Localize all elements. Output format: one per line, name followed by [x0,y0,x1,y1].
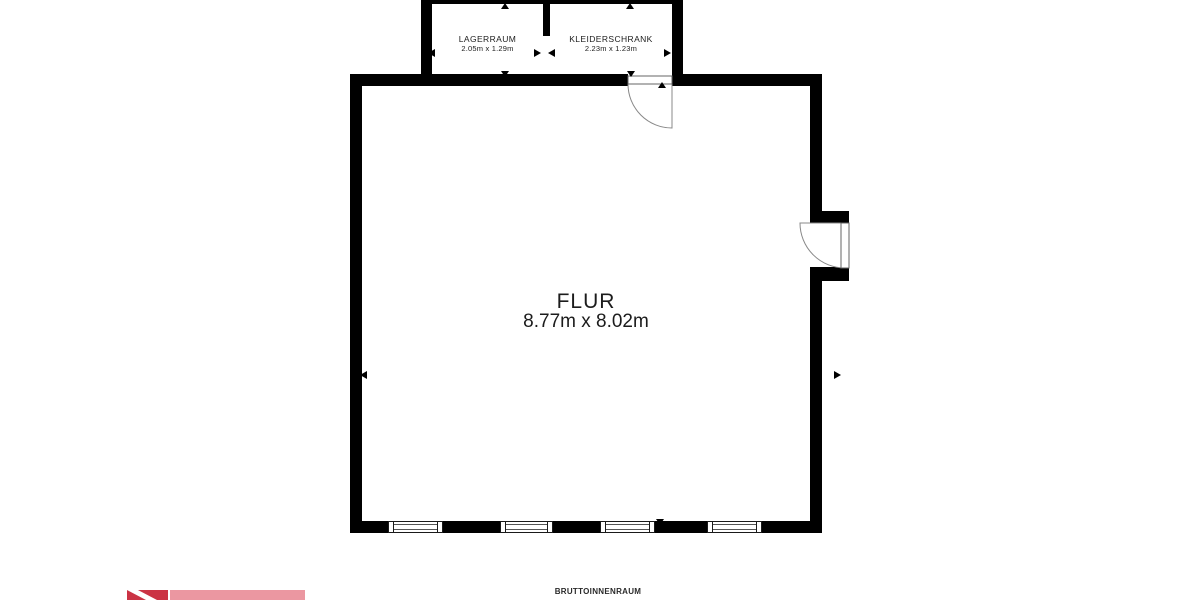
dim-arrow-down-icon [501,71,509,77]
room-dims-flur: 8.77m x 8.02m [436,312,736,331]
window [388,521,443,533]
door-opening-right [810,223,849,267]
dim-arrow-up-icon [501,3,509,9]
wall-closet-left [421,0,432,74]
wall-closet-divider [543,0,550,36]
room-name-lagerraum: LAGERRAUM [432,34,543,44]
footer-area-label: BRUTTOINNENRAUM [538,587,658,596]
dim-arrow-right-icon [834,371,841,379]
dim-arrow-down-icon [656,519,664,525]
room-name-flur: FLUR [436,291,736,312]
dim-arrow-down-icon [627,71,635,77]
dim-arrow-left-icon [360,371,367,379]
floorplan-canvas: LAGERRAUM 2.05m x 1.29m KLEIDERSCHRANK 2… [0,0,1200,600]
window-cap [437,522,438,532]
window-panes [506,524,547,530]
wall-main-top [350,74,822,86]
brand-logo-icon [127,589,307,600]
room-name-kleiderschrank: KLEIDERSCHRANK [550,34,672,44]
window [600,521,655,533]
window [707,521,762,533]
window [500,521,553,533]
wall-main-left [350,74,362,533]
window-cap [756,522,757,532]
wall-main-right [810,74,822,533]
window-panes [606,524,649,530]
room-dims-lagerraum: 2.05m x 1.29m [432,44,543,53]
window-cap [649,522,650,532]
dim-arrow-up-icon [658,82,666,88]
wall-closet-right [672,0,683,74]
wall-closet-top [421,0,683,4]
window-cap [547,522,548,532]
window-panes [713,524,756,530]
window-panes [394,524,437,530]
room-dims-kleiderschrank: 2.23m x 1.23m [550,44,672,53]
dim-arrow-up-icon [626,3,634,9]
